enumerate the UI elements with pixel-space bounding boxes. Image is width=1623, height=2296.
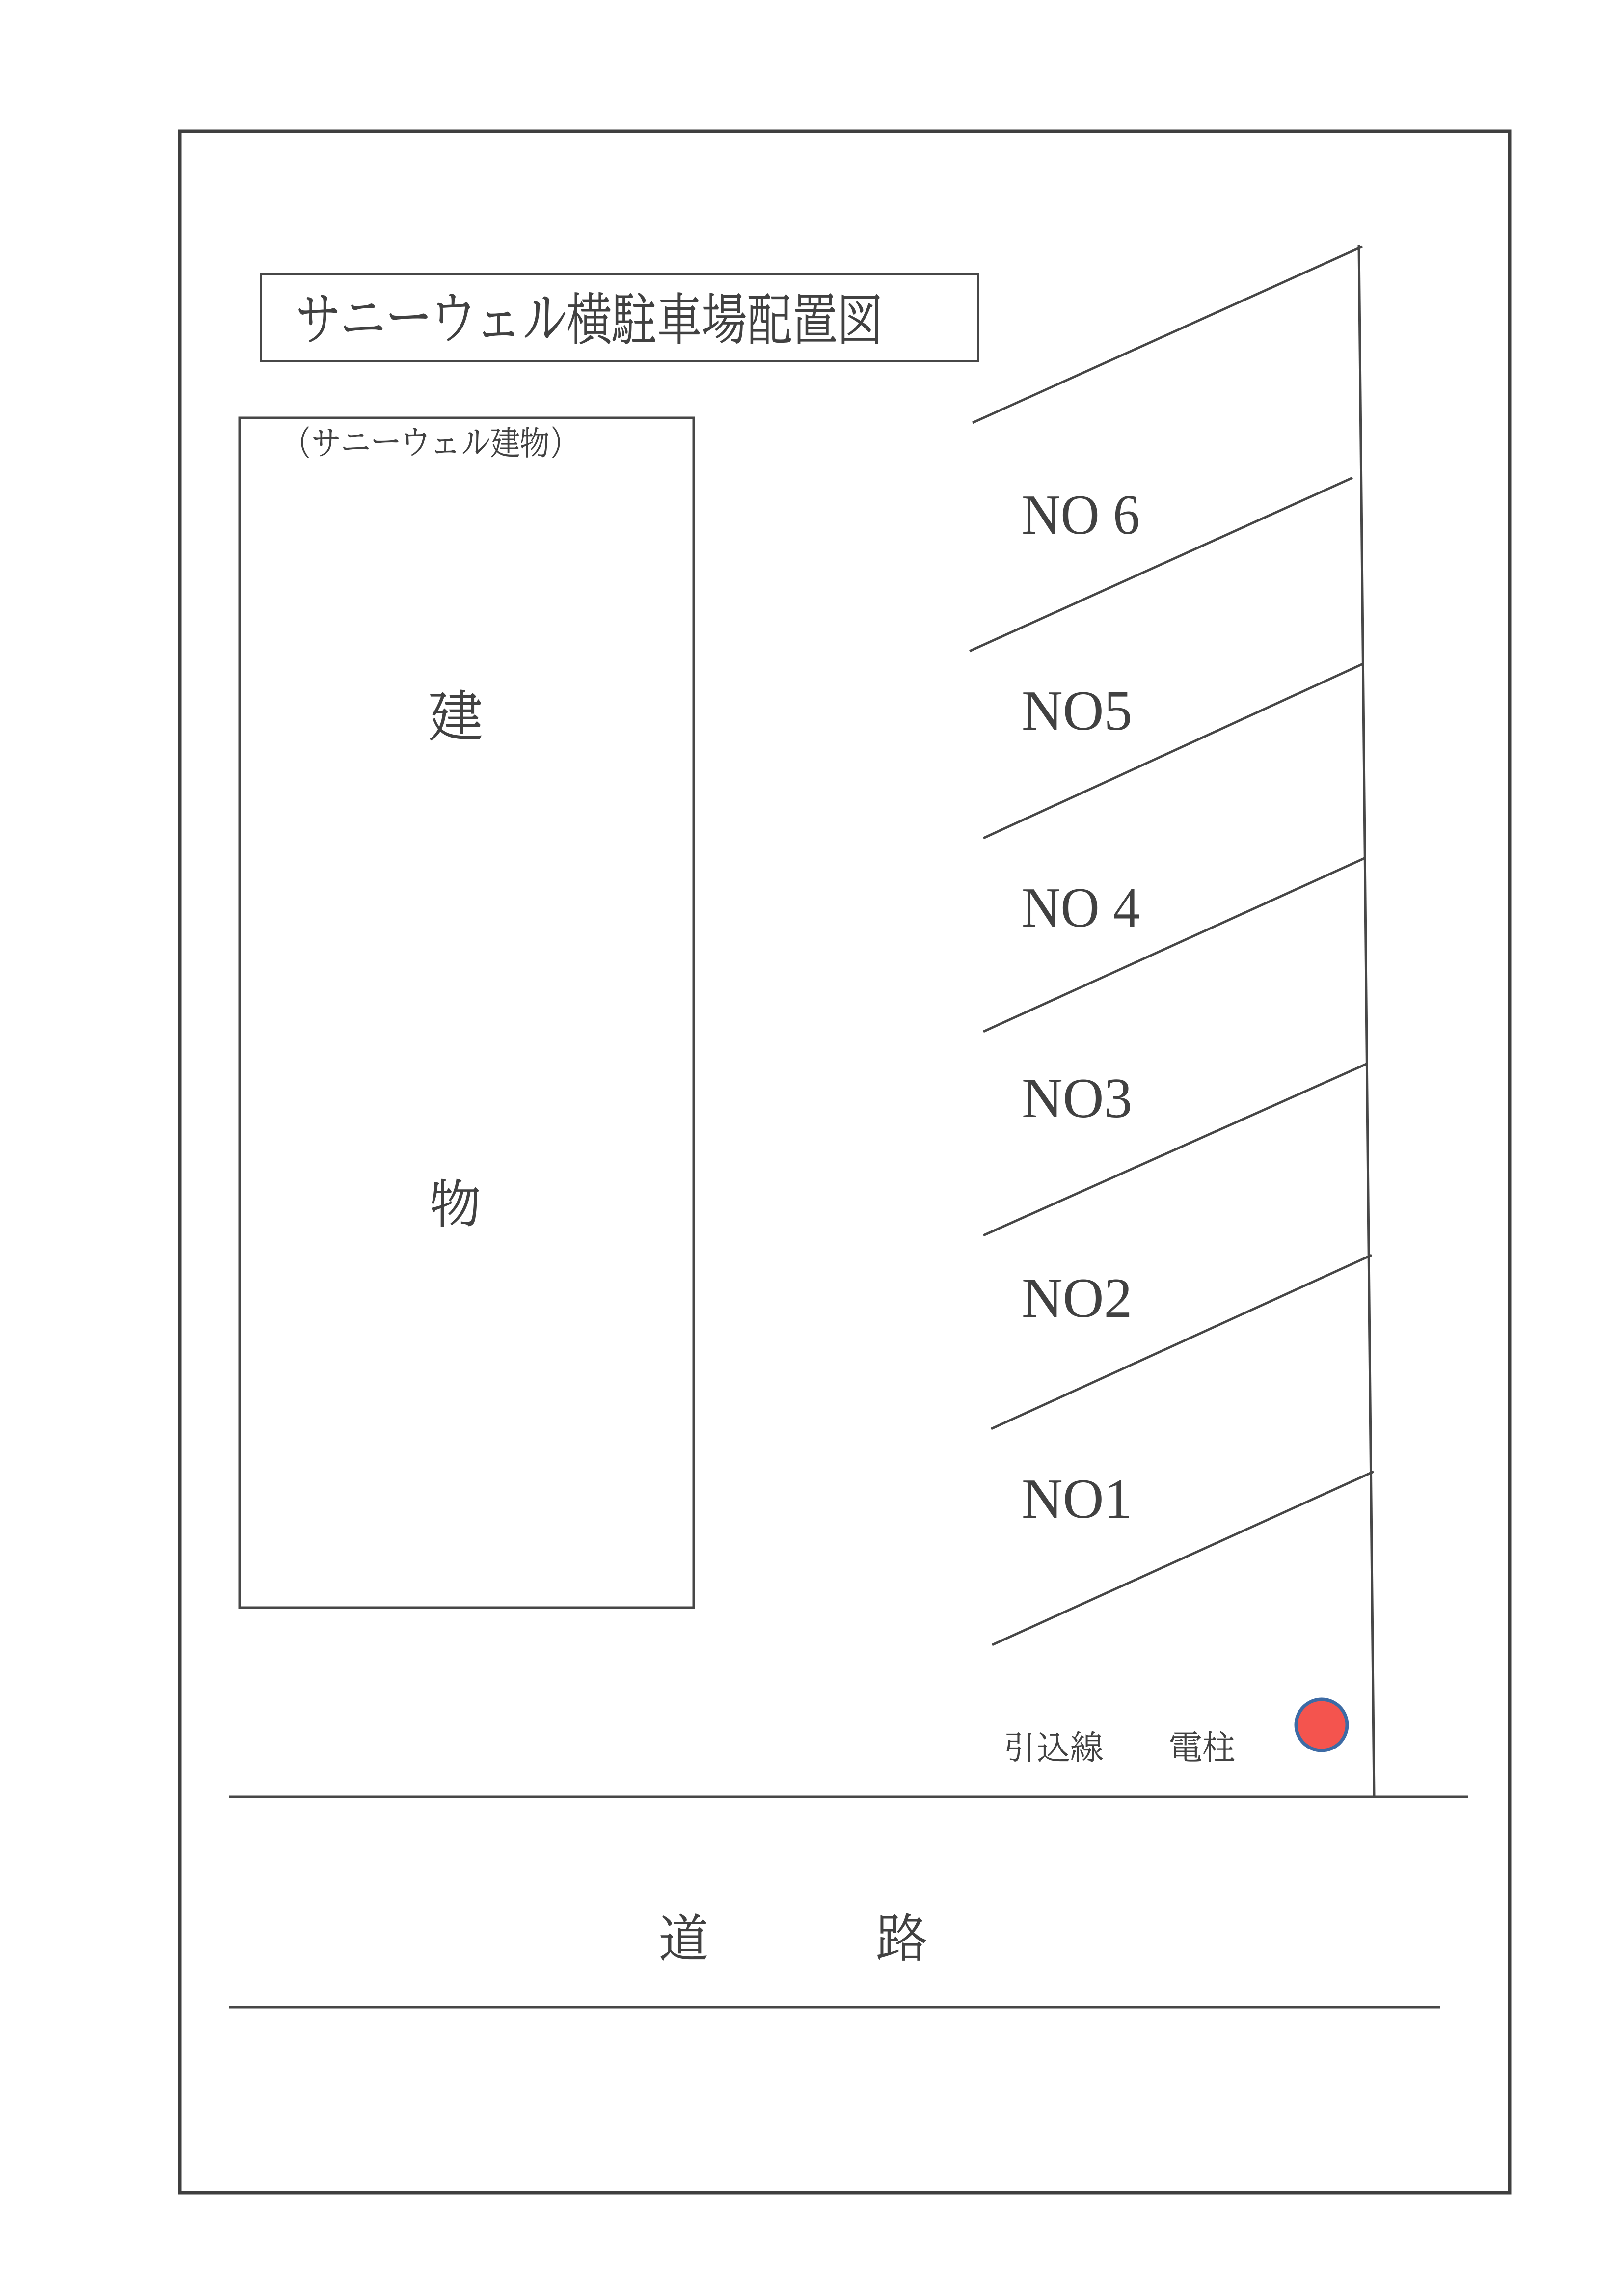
svg-text:NO1: NO1 <box>1022 1468 1133 1531</box>
svg-text:NO 6: NO 6 <box>1022 484 1140 547</box>
svg-text:NO2: NO2 <box>1022 1267 1133 1330</box>
svg-text:NO5: NO5 <box>1022 680 1133 742</box>
svg-text:NO 4: NO 4 <box>1022 876 1140 939</box>
svg-text:NO3: NO3 <box>1022 1067 1133 1130</box>
